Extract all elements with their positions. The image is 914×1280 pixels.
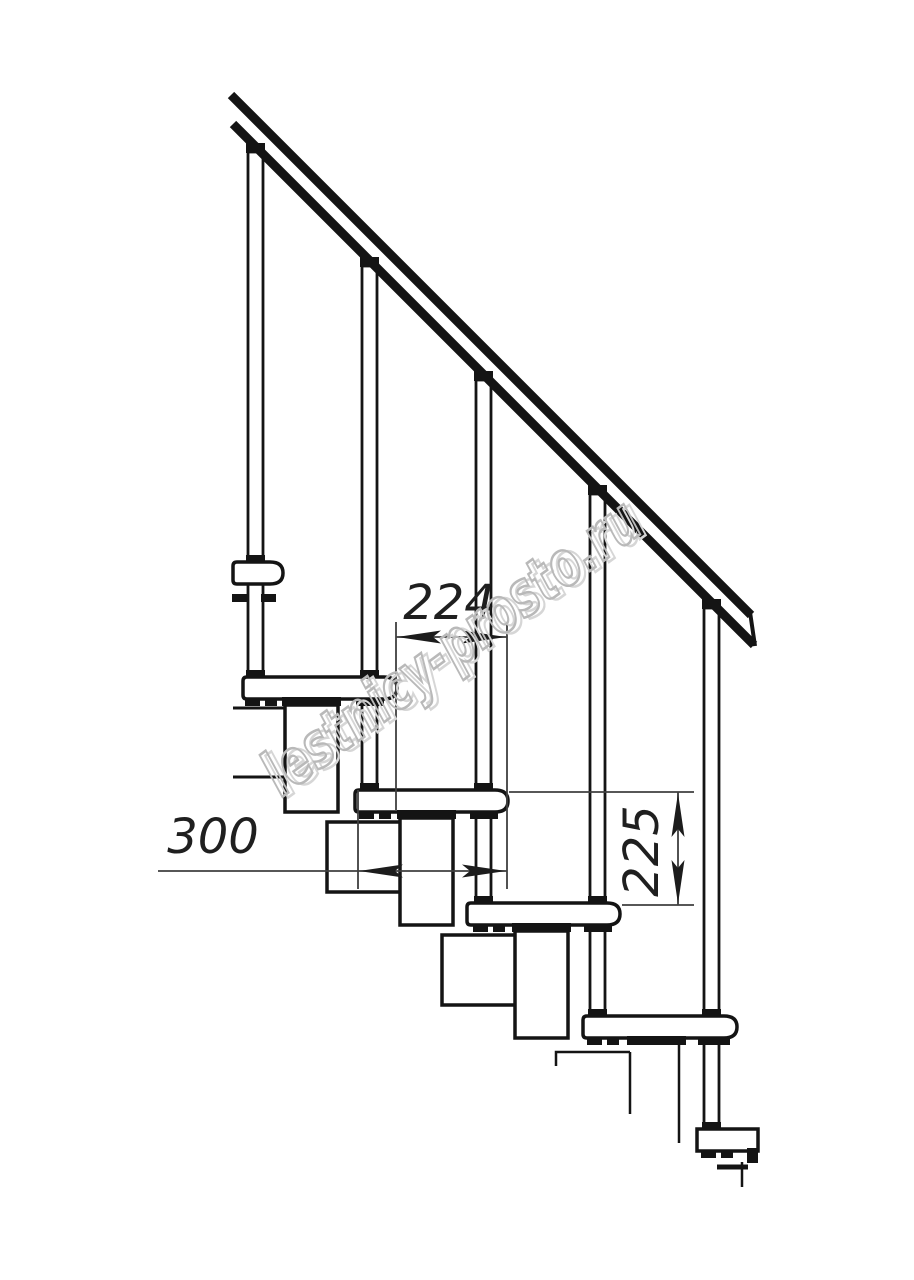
tread-foot [607, 1037, 619, 1045]
baluster-post-1 [248, 152, 263, 674]
tread-foot [265, 698, 277, 706]
post-collar [702, 1122, 721, 1130]
tread-foot [379, 811, 391, 819]
tread-4 [583, 1016, 737, 1038]
technical-drawing-page: 224 300 225 lestnicy-prosto.ru lestnicy-… [0, 0, 914, 1280]
post-clamp-plate [470, 812, 498, 819]
post-collar [360, 783, 379, 791]
post-clamp-plate [584, 925, 612, 932]
post-collar [588, 1009, 607, 1017]
module-top-bar [627, 1036, 686, 1045]
baluster-post-5 [704, 608, 719, 1127]
bottom-tread-notch [747, 1148, 758, 1163]
stringer-module-partial [556, 1052, 630, 1066]
post-collar [474, 896, 493, 904]
tread-5-partial [697, 1129, 758, 1151]
staircase-elevation-drawing: 224 300 225 lestnicy-prosto.ru lestnicy-… [0, 0, 914, 1280]
post-collar [474, 783, 493, 791]
tread-foot [261, 594, 276, 602]
tread-3 [467, 903, 620, 925]
post-collar [588, 896, 607, 904]
tread-foot [359, 811, 374, 819]
module-top-bar [397, 810, 456, 819]
stringer-module-box [442, 935, 518, 1005]
post-clamp-plate [698, 1038, 730, 1045]
post-collar [246, 555, 265, 563]
tread-2 [355, 790, 508, 812]
tread-foot [245, 698, 260, 706]
post-collar [246, 670, 265, 678]
stringer-module-box [515, 931, 568, 1038]
handrail-lower-line [233, 124, 754, 645]
tread-foot [701, 1150, 716, 1158]
module-top-bar [512, 923, 571, 932]
stringer-module-box [327, 822, 403, 892]
tread-upper-landing [233, 562, 283, 584]
tread-foot [473, 924, 488, 932]
tread-foot [493, 924, 505, 932]
dimension-label-module-length: 300 [167, 809, 259, 865]
tread-foot [232, 594, 247, 602]
tread-foot [587, 1037, 602, 1045]
tread-foot [721, 1150, 733, 1158]
dimension-label-riser: 225 [614, 805, 670, 897]
post-collar [702, 1009, 721, 1017]
